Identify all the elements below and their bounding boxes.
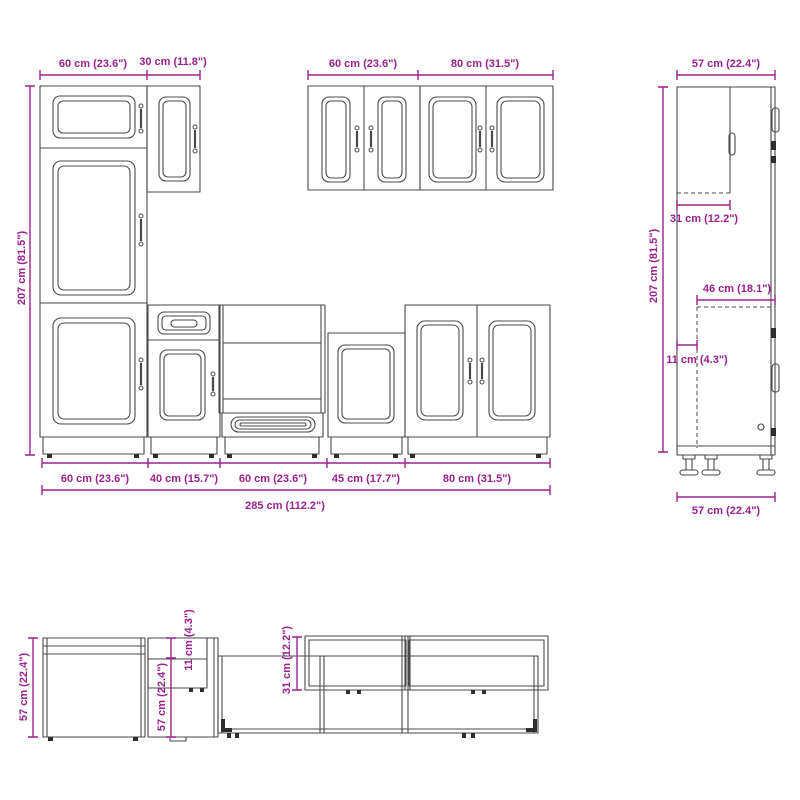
kitchen-cabinet-dimension-diagram: 60 cm (23.6") 30 cm (11.8") 60 cm (23.6"… xyxy=(0,0,800,800)
foot-mark xyxy=(346,690,350,694)
dim-label: 45 cm (17.7") xyxy=(332,473,401,485)
tall-cabinet-front xyxy=(40,86,147,454)
dim-label: 57 cm (22.4") xyxy=(156,663,168,732)
dim-label: 31 cm (12.2") xyxy=(281,626,293,695)
dim-label: 11 cm (4.3") xyxy=(666,354,728,366)
door-handle xyxy=(139,104,143,133)
adjustable-foot xyxy=(680,455,698,475)
plan-view xyxy=(43,636,548,741)
tall-cabinet-top-box xyxy=(40,86,147,148)
foot-mark xyxy=(200,688,204,692)
dim-label: 60 cm (23.6") xyxy=(239,473,308,485)
tall-base-door-panel xyxy=(53,318,135,424)
door-handle xyxy=(478,126,482,152)
dim-label: 57 cm (22.4") xyxy=(18,653,30,722)
foot-mark xyxy=(227,733,231,738)
base-cabinet-40-front xyxy=(148,305,220,454)
door-panel xyxy=(338,345,394,423)
tall-mid-door-panel xyxy=(53,161,135,295)
base-cabinet-45-front xyxy=(328,333,405,454)
door-handle xyxy=(211,372,215,396)
foot-mark xyxy=(471,733,475,738)
base-cabinet-80-front xyxy=(405,305,550,454)
foot-mark xyxy=(482,690,486,694)
door-handle xyxy=(369,126,373,152)
dim-line-top-left xyxy=(40,70,200,80)
tall-cabinet-mid-box xyxy=(40,148,147,303)
foot-mark xyxy=(471,690,475,694)
door-panel xyxy=(160,350,205,420)
drawer-handle xyxy=(171,320,197,327)
foot-mark xyxy=(133,737,138,741)
dim-label: 80 cm (31.5") xyxy=(451,58,520,70)
vent-grille xyxy=(231,417,315,432)
cabinet-feet-marks xyxy=(47,454,541,458)
plinth xyxy=(408,437,547,454)
dim-label: 40 cm (15.7") xyxy=(150,473,219,485)
door-handle xyxy=(193,125,197,153)
tall-top-door-panel xyxy=(53,96,135,138)
adjustable-foot xyxy=(702,455,720,475)
door-panel xyxy=(417,321,463,420)
plinth xyxy=(151,437,217,454)
door-handle xyxy=(468,358,472,384)
door-panel xyxy=(429,97,476,182)
dim-line-upper-depth xyxy=(677,200,730,210)
dim-label: 60 cm (23.6") xyxy=(61,473,130,485)
door-panel xyxy=(497,97,544,182)
wall-cabinet-80-plan xyxy=(405,636,548,694)
foot-mark xyxy=(462,733,466,738)
diagram-canvas: 60 cm (23.6") 30 cm (11.8") 60 cm (23.6"… xyxy=(0,0,800,800)
door-panel xyxy=(159,97,190,181)
dim-label: 207 cm (81.5") xyxy=(648,229,660,304)
dim-label: 60 cm (23.6") xyxy=(59,58,128,70)
door-handle xyxy=(139,358,143,390)
tall-cabinet-side-view xyxy=(677,87,779,475)
plinth xyxy=(43,437,144,454)
foot-mark xyxy=(357,690,361,694)
dim-label: 46 cm (18.1") xyxy=(703,283,772,295)
wall-cabinet-60-plan xyxy=(305,636,410,694)
hinge-mark xyxy=(771,428,776,436)
foot-mark xyxy=(48,737,53,741)
dim-label: 31 cm (12.2") xyxy=(670,213,739,225)
dim-line-bottom-widths xyxy=(42,458,550,468)
dim-label: 30 cm (11.8") xyxy=(139,56,207,68)
dim-line-total-width xyxy=(42,485,550,495)
door-handle xyxy=(355,126,359,152)
dim-line-inner-depth xyxy=(697,295,775,305)
dim-line-top-middle xyxy=(308,70,553,80)
oven-cabinet-60-front xyxy=(219,305,325,454)
corner-bracket xyxy=(526,719,537,732)
dim-label: 57 cm (22.4") xyxy=(692,505,761,517)
door-handle xyxy=(490,126,494,152)
door-panel xyxy=(489,321,535,420)
wall-cabinet-80-front xyxy=(420,86,553,190)
foot-mark xyxy=(189,688,193,692)
dim-label: 207 cm (81.5") xyxy=(16,231,28,306)
dim-label: 285 cm (112.2") xyxy=(245,500,325,512)
door-handle xyxy=(480,358,484,384)
dim-line-plan-wall-depth xyxy=(292,637,302,690)
dim-label: 80 cm (31.5") xyxy=(443,473,512,485)
front-elevation xyxy=(40,86,553,458)
wall-cabinet-60-front xyxy=(308,86,420,190)
hinge-mark xyxy=(771,141,776,150)
hinge-mark xyxy=(771,328,776,338)
base-run-plan xyxy=(218,636,538,738)
tall-cabinet-plan xyxy=(43,638,145,741)
dim-label: 57 cm (22.4") xyxy=(692,58,761,70)
plinth xyxy=(331,437,402,454)
plinth xyxy=(225,437,319,454)
drawer-front xyxy=(158,312,210,334)
dim-line-side-top xyxy=(677,70,775,80)
dim-label: 11 cm (4.3") xyxy=(183,609,195,671)
adjustable-foot xyxy=(757,455,775,475)
cam-lock-mark xyxy=(758,424,764,430)
wall-cabinet-30-front xyxy=(147,86,200,192)
dim-line-front-offset xyxy=(677,340,697,350)
hinge-mark xyxy=(771,156,776,163)
foot-mark xyxy=(235,733,239,738)
corner-bracket xyxy=(221,719,232,732)
dim-label: 60 cm (23.6") xyxy=(329,58,398,70)
dim-line-side-bottom xyxy=(677,492,775,502)
door-handle xyxy=(139,214,143,246)
